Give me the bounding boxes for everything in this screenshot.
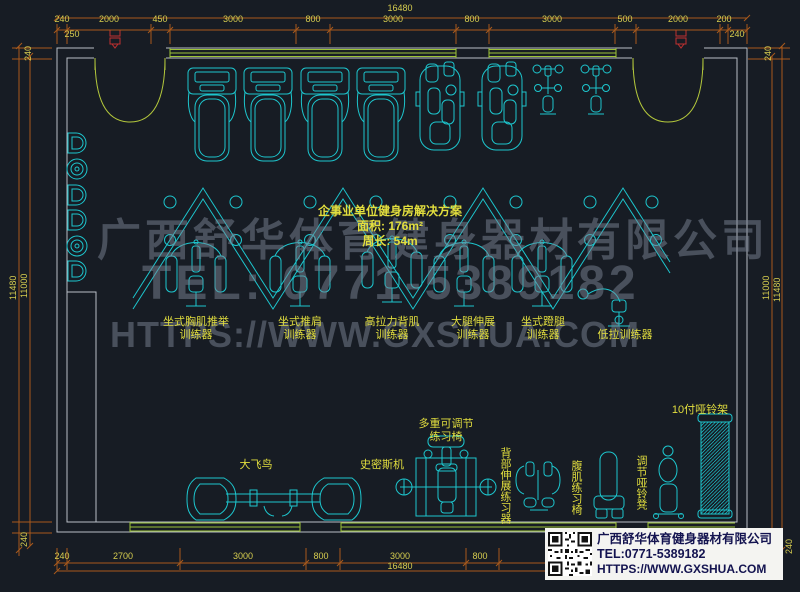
- exercise-bike-icons: [533, 65, 611, 114]
- company-name: 广西舒华体育健身器材有限公司: [597, 532, 772, 547]
- label-low-pull: 低拉训练器: [598, 329, 653, 342]
- dim-label: 200: [716, 15, 731, 24]
- smith-machine-icon: [396, 450, 496, 516]
- dim-label: 250: [64, 30, 79, 39]
- double-door-left: [95, 58, 165, 122]
- dim-label: 800: [464, 15, 479, 24]
- company-info-box: 广西舒华体育健身器材有限公司 TEL:0771-5389182 HTTPS://…: [545, 528, 783, 580]
- back-extension-icon: [516, 462, 560, 510]
- treadmill-icons: [188, 68, 405, 161]
- dim-label: 500: [617, 15, 632, 24]
- label-fly-machine: 大飞鸟: [240, 459, 273, 472]
- label-dumbbell-stool: 调节哑铃凳: [635, 455, 647, 510]
- dim-label: 3000: [223, 15, 243, 24]
- cad-floor-plan-viewport: 广西舒华体育健身器材有限公司 TEL: 0771-5389182 HTTPS:/…: [0, 0, 800, 592]
- company-tel: TEL:0771-5389182: [597, 547, 772, 562]
- label-smith-machine: 史密斯机: [360, 459, 404, 472]
- label-leg-press: 坐式蹬腿 训练器: [521, 316, 565, 342]
- dim-left-inner: 11000: [20, 274, 29, 298]
- company-url: HTTPS://WWW.GXSHUA.COM: [597, 562, 772, 577]
- stool-icons: [67, 133, 87, 281]
- dim-label: 800: [313, 552, 328, 561]
- dim-wall: 240: [785, 539, 794, 554]
- dumbbell-stool-icon: [654, 446, 684, 519]
- dim-right-total: 11480: [773, 278, 782, 302]
- label-dumbbell-rack: 10付哑铃架: [672, 404, 728, 417]
- dim-left-total: 11480: [9, 276, 18, 300]
- label-chest-press: 坐式胸肌推举 训练器: [163, 316, 229, 342]
- dim-label: 240: [54, 552, 69, 561]
- dim-wall: 240: [20, 532, 29, 547]
- elliptical-icons: [416, 62, 526, 150]
- dim-label: 800: [305, 15, 320, 24]
- dim-label: 240: [54, 15, 69, 24]
- label-leg-extension: 大腿伸展 训练器: [451, 316, 495, 342]
- dim-label: 240: [729, 30, 744, 39]
- watermark-tel: TEL: 0771-5389182: [142, 256, 640, 311]
- dim-right-inner: 11000: [762, 276, 771, 300]
- partition-wall: [67, 292, 96, 522]
- fly-machine-icon: [187, 478, 361, 520]
- dumbbell-rack-icon: [698, 414, 732, 518]
- qr-code-icon: [548, 532, 592, 576]
- dim-label: 2000: [99, 15, 119, 24]
- dim-wall: 240: [24, 46, 33, 61]
- dim-wall: 240: [764, 46, 773, 61]
- dim-label: 3000: [542, 15, 562, 24]
- double-door-right: [633, 58, 703, 122]
- label-shoulder-press: 坐式推肩 训练器: [278, 316, 322, 342]
- ab-bench-icon: [594, 452, 624, 518]
- dim-label: 3000: [233, 552, 253, 561]
- dim-label: 3000: [390, 552, 410, 561]
- dim-label: 3000: [383, 15, 403, 24]
- dim-label: 2700: [113, 552, 133, 561]
- label-ab-bench: 腹肌练习椅: [570, 460, 582, 515]
- dim-label: 450: [152, 15, 167, 24]
- plan-perimeter: 周长: 54m: [362, 232, 417, 249]
- company-info-text: 广西舒华体育健身器材有限公司 TEL:0771-5389182 HTTPS://…: [597, 532, 772, 577]
- dim-label: 2000: [668, 15, 688, 24]
- dim-bottom-total: 16480: [387, 562, 412, 571]
- door-number-tags: [110, 30, 686, 48]
- label-adjustable-bench: 多重可调节 练习椅: [419, 418, 474, 444]
- dim-label: 800: [472, 552, 487, 561]
- dim-top-total: 16480: [387, 4, 412, 13]
- label-back-extension: 背部伸展练习器: [499, 447, 511, 524]
- label-lat-pulldown: 高拉力背肌 训练器: [365, 316, 420, 342]
